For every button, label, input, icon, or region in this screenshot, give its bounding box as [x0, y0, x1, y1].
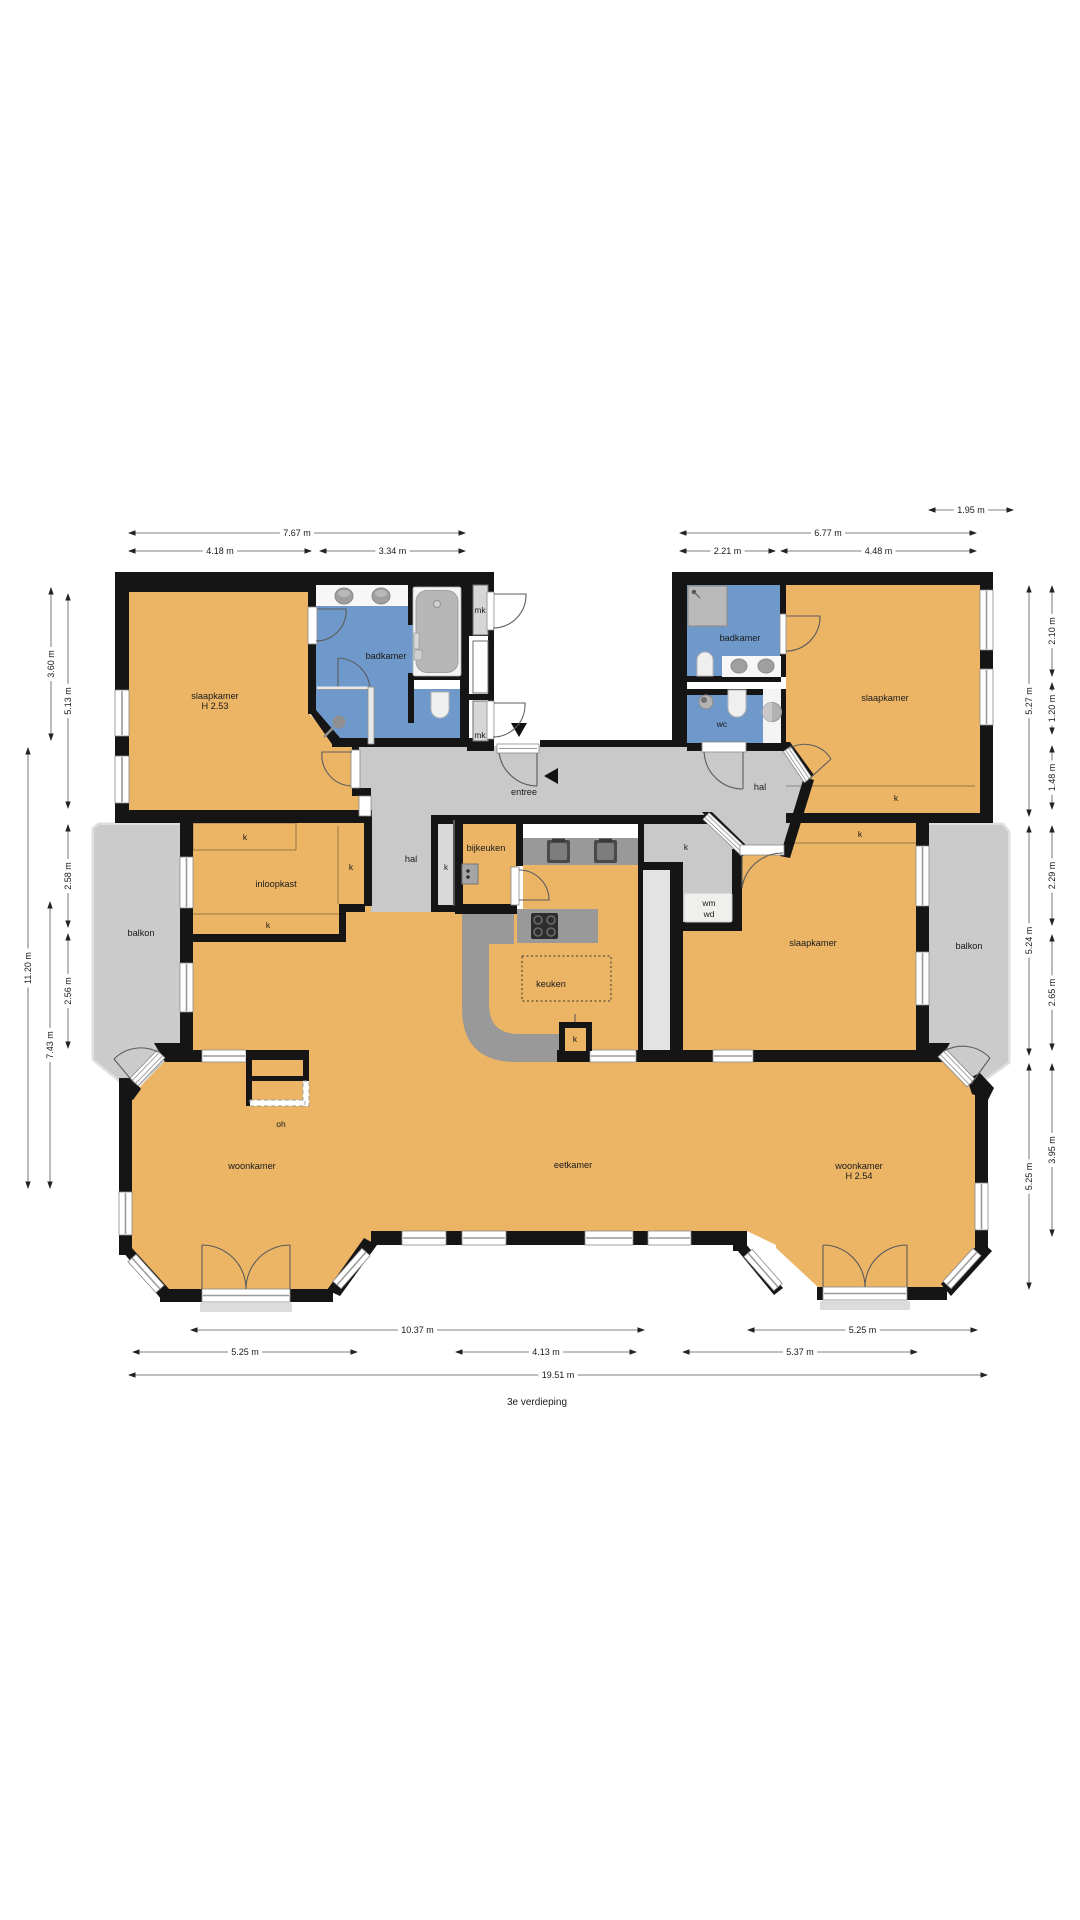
svg-text:10.37 m: 10.37 m	[401, 1325, 434, 1335]
svg-text:mk: mk	[474, 730, 486, 740]
svg-text:5.25 m: 5.25 m	[231, 1347, 259, 1357]
svg-text:2.65 m: 2.65 m	[1047, 979, 1057, 1007]
svg-text:7.43 m: 7.43 m	[45, 1031, 55, 1059]
svg-text:1.48 m: 1.48 m	[1047, 764, 1057, 792]
svg-text:bijkeuken: bijkeuken	[467, 843, 506, 853]
svg-text:slaapkamer: slaapkamer	[861, 693, 909, 703]
svg-text:5.25 m: 5.25 m	[1024, 1163, 1034, 1191]
svg-text:5.27 m: 5.27 m	[1024, 687, 1034, 715]
svg-text:3.95 m: 3.95 m	[1047, 1136, 1057, 1164]
svg-text:2.56 m: 2.56 m	[63, 977, 73, 1005]
svg-text:wc: wc	[716, 719, 728, 729]
svg-text:3.60 m: 3.60 m	[46, 650, 56, 678]
svg-text:1.20 m: 1.20 m	[1047, 695, 1057, 723]
svg-text:19.51 m: 19.51 m	[542, 1370, 575, 1380]
svg-text:entree: entree	[511, 787, 537, 797]
svg-text:5.37 m: 5.37 m	[786, 1347, 814, 1357]
svg-text:slaapkamer: slaapkamer	[191, 691, 239, 701]
svg-text:2.58 m: 2.58 m	[63, 862, 73, 890]
svg-text:3e verdieping: 3e verdieping	[507, 1397, 567, 1408]
svg-text:H 2.53: H 2.53	[201, 701, 228, 711]
svg-text:slaapkamer: slaapkamer	[789, 938, 837, 948]
svg-text:keuken: keuken	[536, 979, 566, 989]
svg-text:woonkamer: woonkamer	[227, 1161, 276, 1171]
svg-text:11.20 m: 11.20 m	[23, 952, 33, 984]
svg-text:badkamer: badkamer	[720, 633, 761, 643]
svg-text:4.13 m: 4.13 m	[532, 1347, 560, 1357]
svg-text:5.13 m: 5.13 m	[63, 687, 73, 715]
svg-text:hal: hal	[754, 782, 766, 792]
svg-text:6.77 m: 6.77 m	[814, 528, 842, 538]
svg-text:2.29 m: 2.29 m	[1047, 862, 1057, 890]
svg-text:inloopkast: inloopkast	[255, 879, 297, 889]
svg-text:hal: hal	[405, 854, 417, 864]
svg-text:4.18 m: 4.18 m	[206, 546, 234, 556]
svg-text:oh: oh	[276, 1119, 286, 1129]
svg-text:balkon: balkon	[127, 928, 154, 938]
svg-text:mk: mk	[474, 605, 486, 615]
svg-text:wm: wm	[701, 898, 715, 908]
svg-text:badkamer: badkamer	[366, 651, 407, 661]
svg-text:7.67 m: 7.67 m	[283, 528, 311, 538]
svg-text:5.24 m: 5.24 m	[1024, 927, 1034, 955]
svg-text:woonkamer: woonkamer	[834, 1161, 883, 1171]
svg-text:2.10 m: 2.10 m	[1047, 617, 1057, 645]
svg-text:2.21 m: 2.21 m	[714, 546, 742, 556]
svg-text:5.25 m: 5.25 m	[849, 1325, 877, 1335]
svg-text:eetkamer: eetkamer	[554, 1160, 592, 1170]
svg-text:3.34 m: 3.34 m	[379, 546, 407, 556]
svg-text:4.48 m: 4.48 m	[865, 546, 893, 556]
svg-text:1.95 m: 1.95 m	[957, 505, 985, 515]
svg-text:wd: wd	[703, 909, 715, 919]
svg-text:H 2.54: H 2.54	[845, 1171, 872, 1181]
svg-text:balkon: balkon	[955, 941, 982, 951]
